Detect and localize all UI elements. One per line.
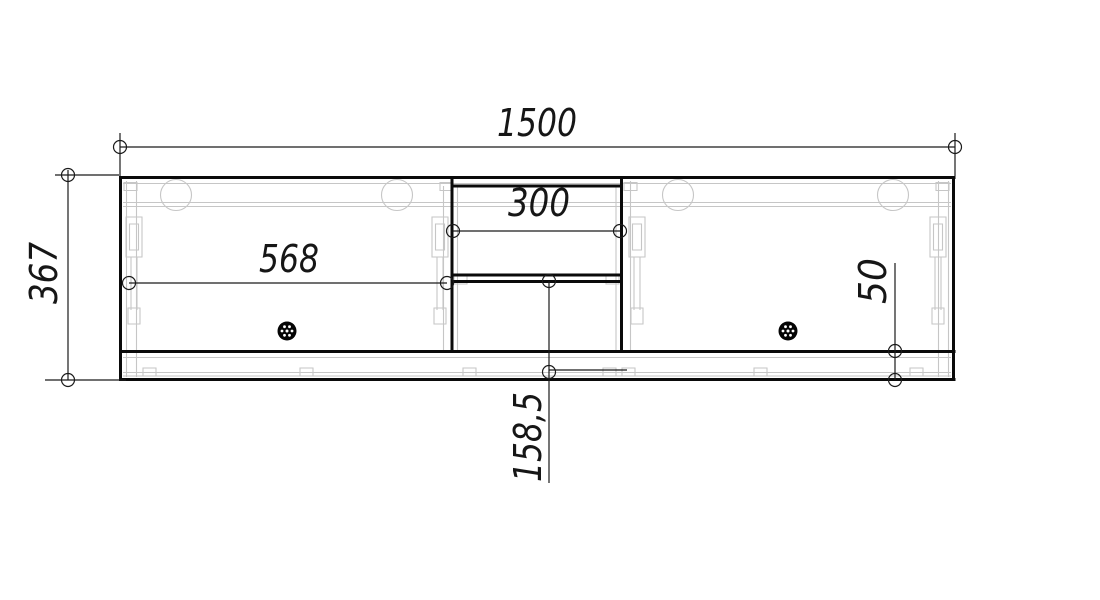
door-knobs-layer <box>278 322 798 341</box>
left-door-knob-icon <box>278 322 297 341</box>
dim-label-total-width: 1500 <box>497 101 577 145</box>
hinge-cup-icon <box>878 180 909 211</box>
hinge-cup-icon <box>382 180 413 211</box>
dim-label-lower-section-height: 158,5 <box>506 392 550 482</box>
lift-stay-icon <box>126 217 142 324</box>
hinge-cup-icon <box>663 180 694 211</box>
lift-stay-icon <box>629 217 645 324</box>
furniture-front-view-drawing: 1500 300 568 367 50 158,5 <box>0 0 1100 600</box>
dim-label-total-height: 367 <box>22 242 66 304</box>
hinge-cup-icon <box>161 180 192 211</box>
right-door-knob-icon <box>779 322 798 341</box>
dim-label-left-door-width: 568 <box>259 237 319 281</box>
dimension-labels-layer: 1500 300 568 367 50 158,5 <box>22 101 895 482</box>
cad-drawing-page: 1500 300 568 367 50 158,5 <box>0 0 1100 600</box>
lift-stay-icon <box>432 217 448 324</box>
dim-label-center-opening-width: 300 <box>508 181 570 225</box>
dim-label-bottom-offset: 50 <box>851 258 895 304</box>
